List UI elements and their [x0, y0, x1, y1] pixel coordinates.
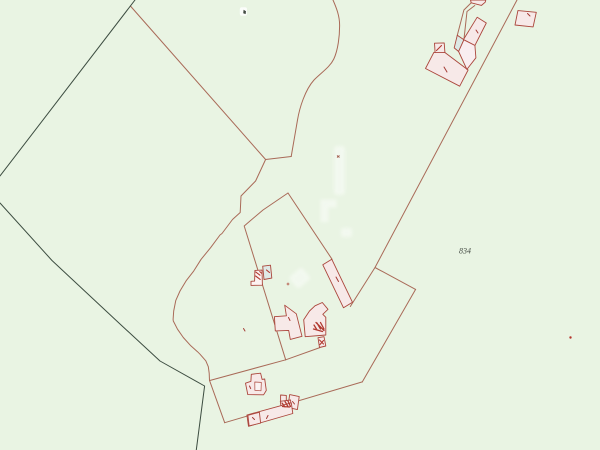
svg-text:834: 834	[459, 247, 471, 256]
